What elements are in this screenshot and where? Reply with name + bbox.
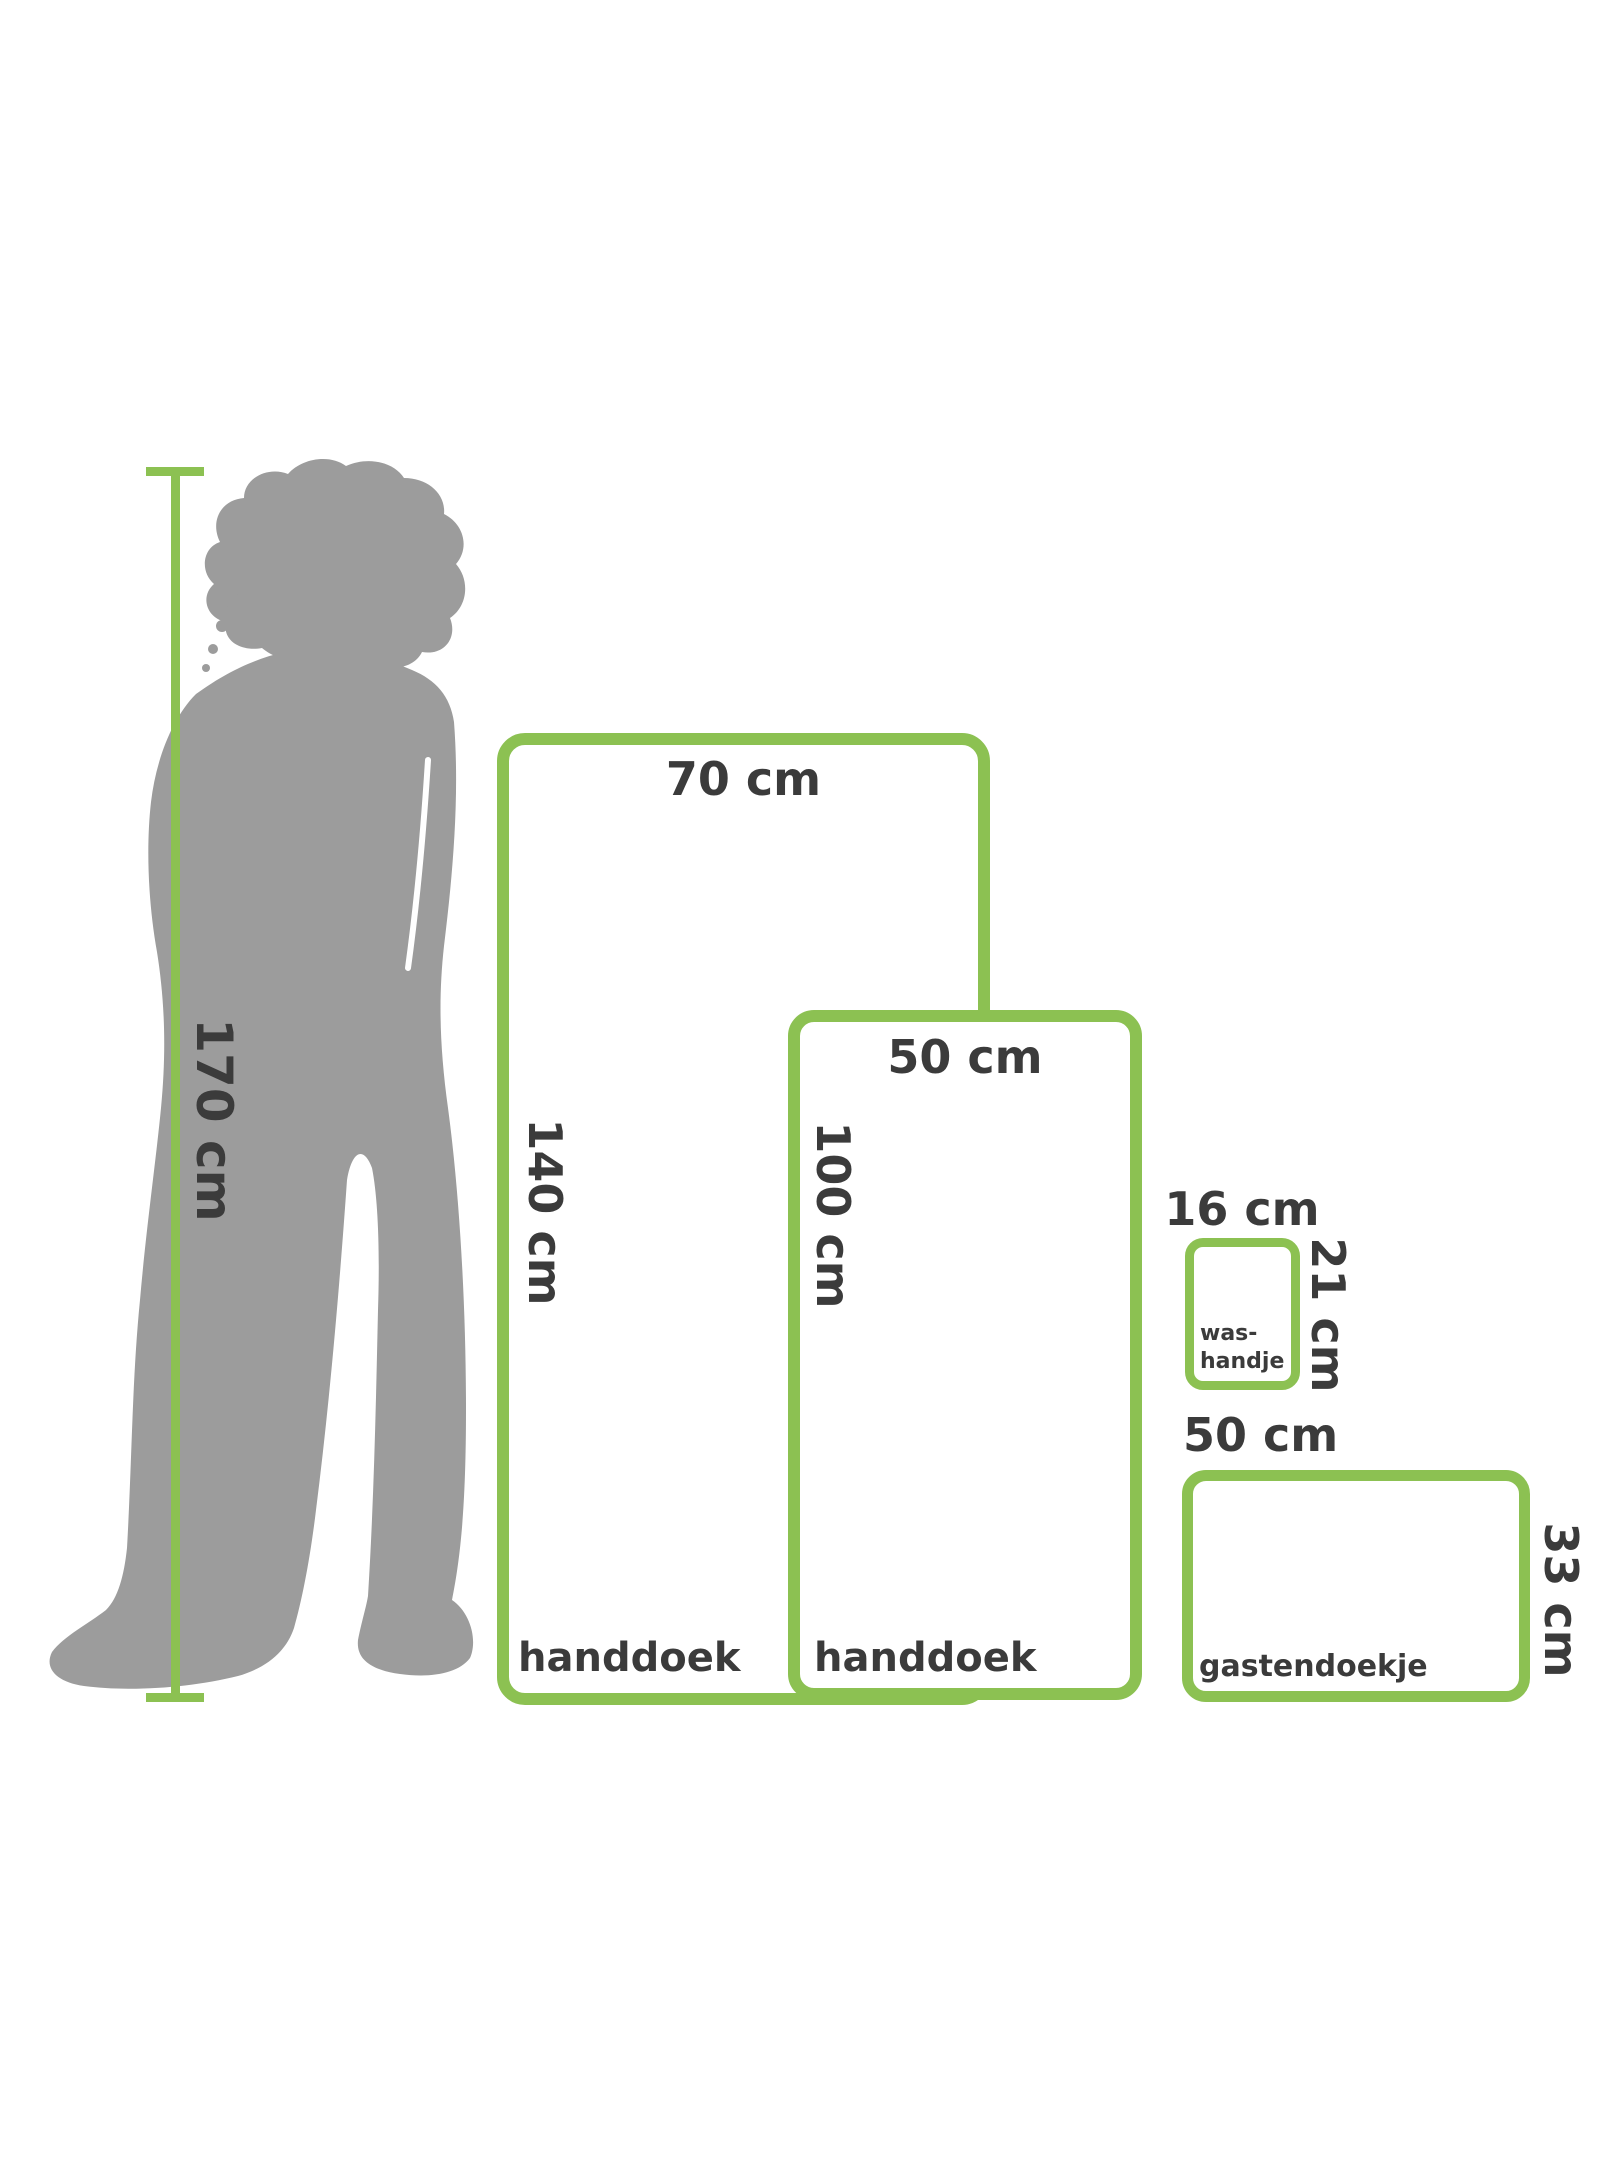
- handdoek-large-name-label: handdoek: [518, 1638, 740, 1678]
- height-measure-line: [171, 467, 180, 1702]
- washandje-name-line1: was-: [1200, 1320, 1284, 1348]
- gastendoekje-height-label: 33 cm: [1538, 1522, 1584, 1677]
- handdoek-medium-width-label: 50 cm: [788, 1034, 1142, 1080]
- washandje-height-label: 21 cm: [1305, 1237, 1351, 1392]
- measure-cap-bottom: [146, 1693, 204, 1702]
- handdoek-medium-height-label: 100 cm: [810, 1121, 856, 1308]
- person-height-label: 170 cm: [189, 1018, 239, 1222]
- handdoek-large-height-label: 140 cm: [522, 1118, 568, 1305]
- gastendoekje-name-label: gastendoekje: [1199, 1652, 1428, 1682]
- silhouette-hair: [205, 459, 465, 667]
- gastendoekje-width-label: 50 cm: [1183, 1412, 1338, 1458]
- silhouette-body: [50, 648, 474, 1689]
- towel-rect-handdoek-medium: [788, 1010, 1142, 1700]
- handdoek-large-width-label: 70 cm: [497, 756, 990, 802]
- measure-cap-top: [146, 467, 204, 476]
- washandje-width-label: 16 cm: [1162, 1186, 1322, 1232]
- washandje-name-label: was- handje: [1200, 1320, 1284, 1376]
- size-comparison-diagram: { "canvas": { "width": 1600, "height": 2…: [0, 0, 1600, 2182]
- washandje-name-line2: handje: [1200, 1348, 1284, 1376]
- handdoek-medium-name-label: handdoek: [814, 1638, 1036, 1678]
